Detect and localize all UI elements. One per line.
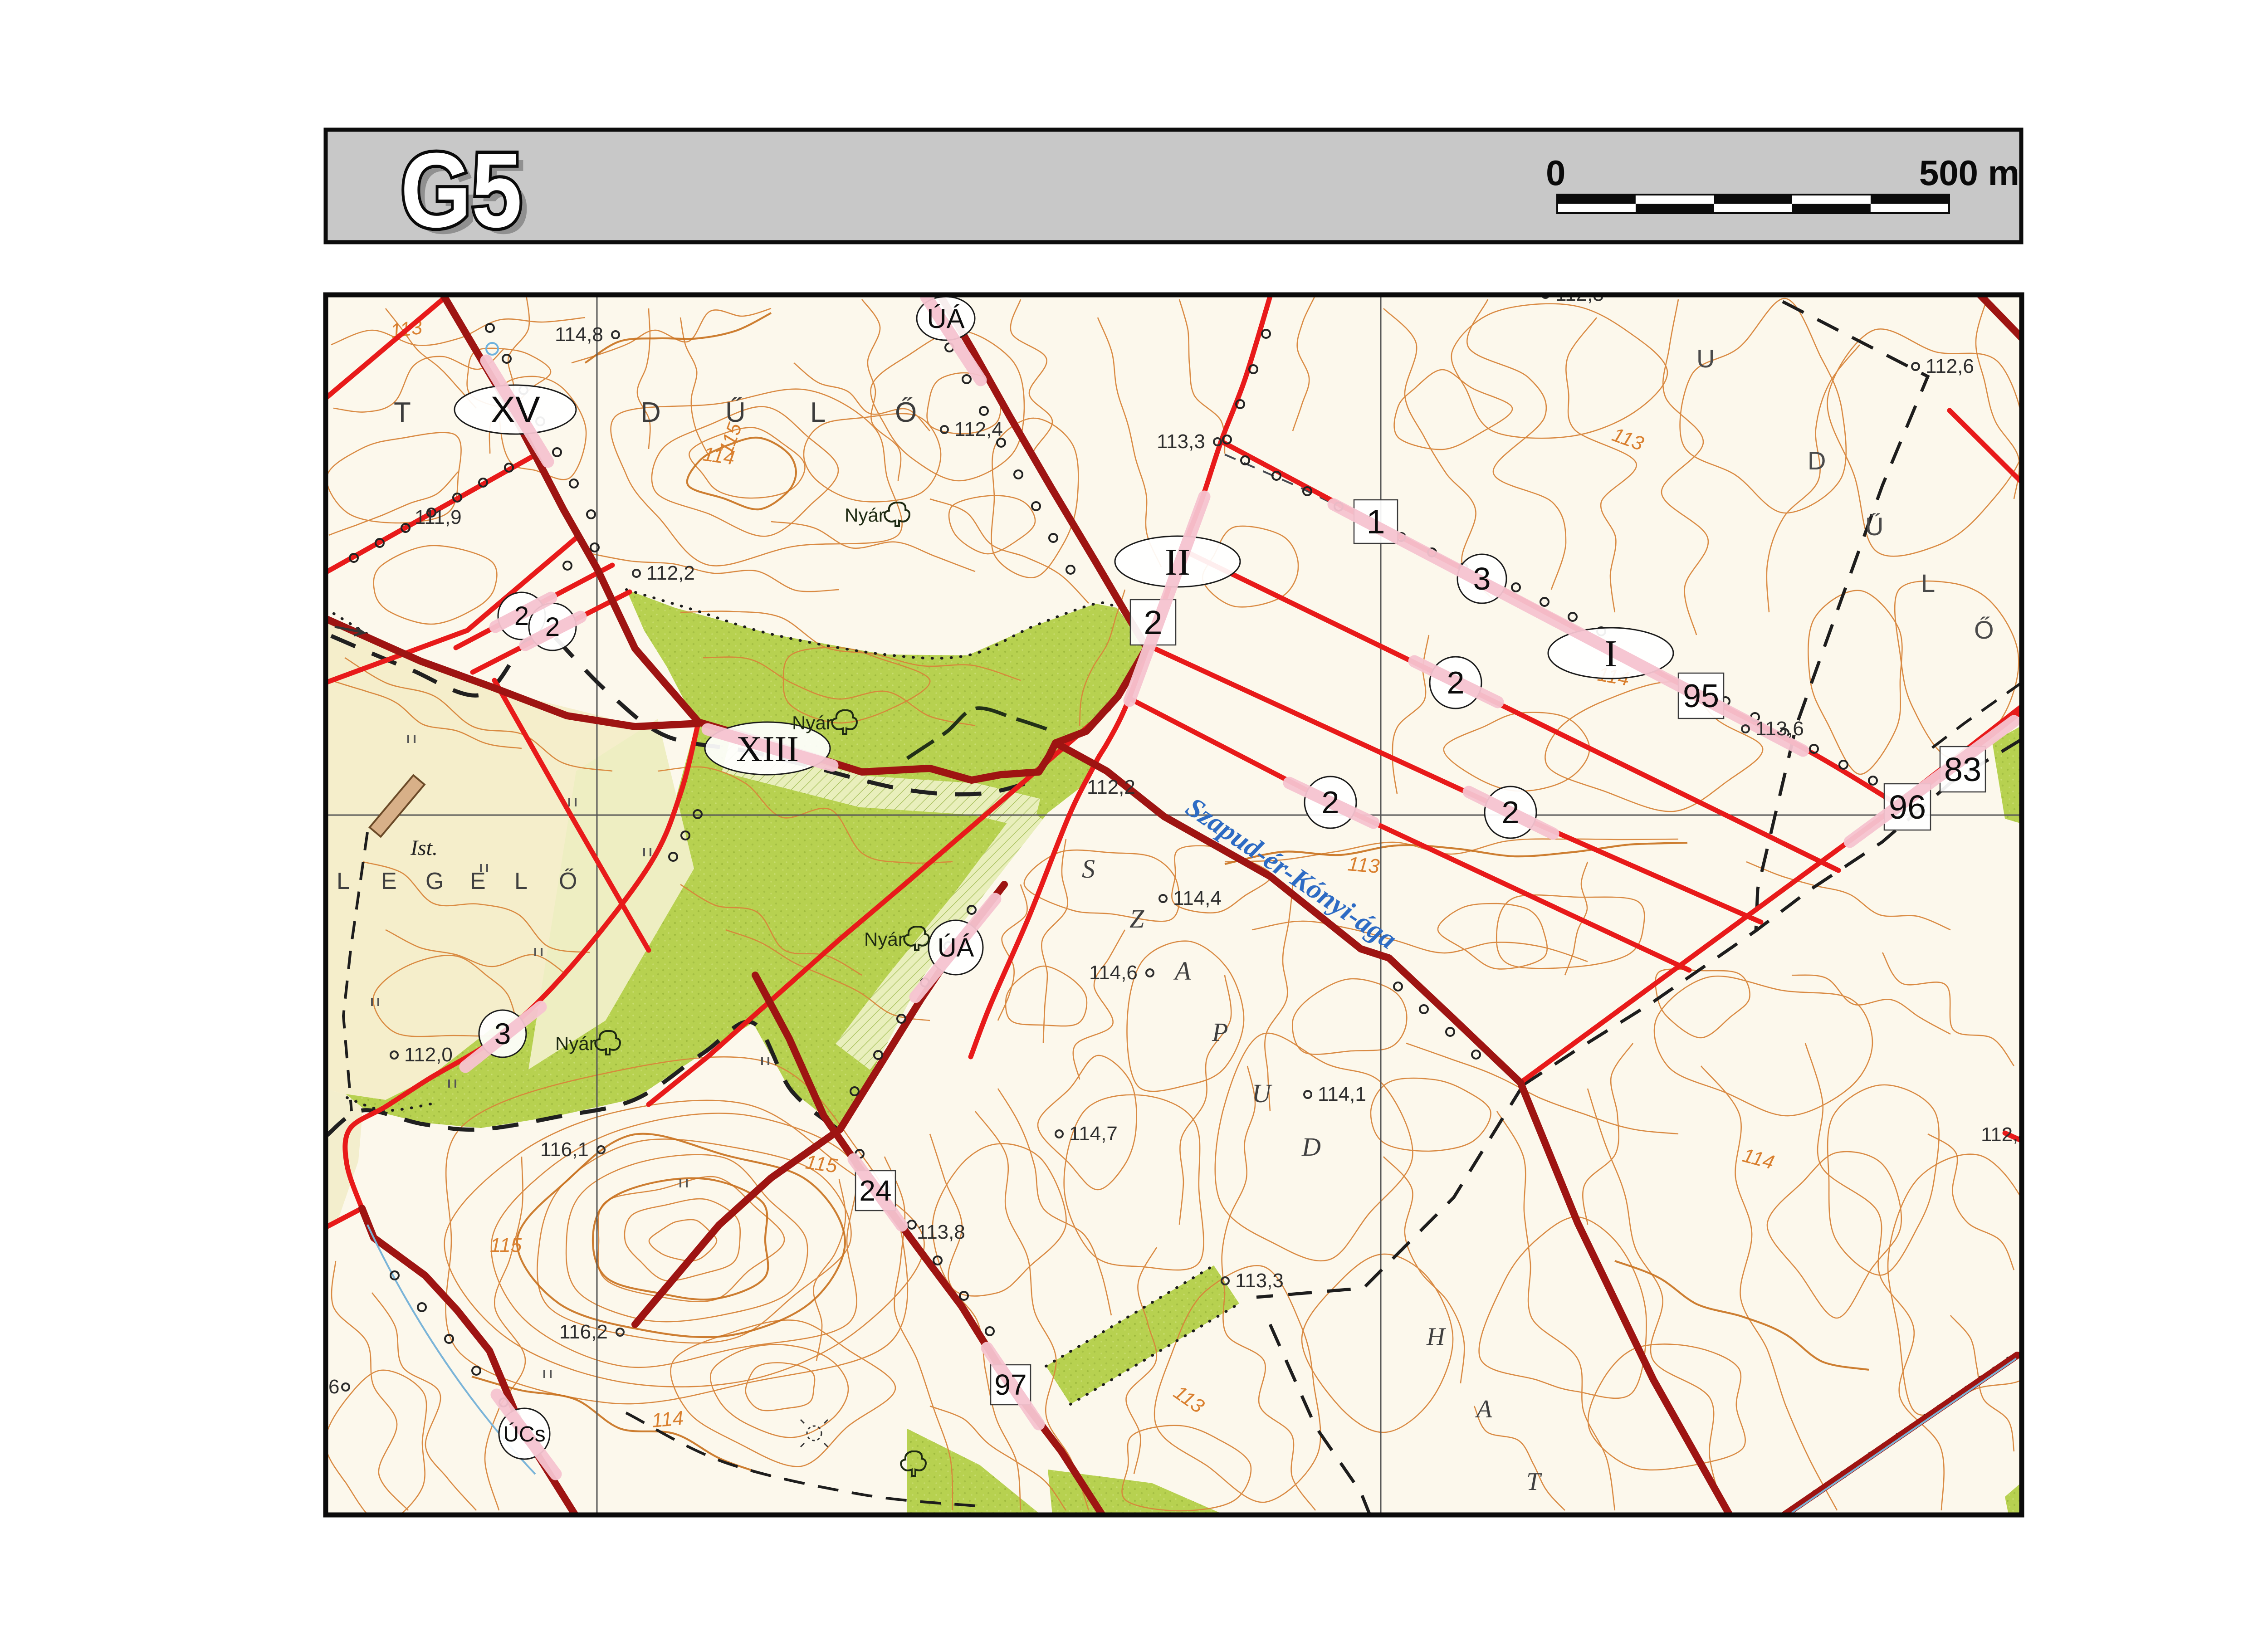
svg-text:2: 2 xyxy=(1322,785,1339,820)
svg-text:96: 96 xyxy=(1889,788,1926,826)
svg-text:95: 95 xyxy=(1683,678,1719,714)
svg-text:2: 2 xyxy=(545,612,560,642)
svg-text:0: 0 xyxy=(1546,153,1565,193)
svg-text:Ő: Ő xyxy=(559,868,577,894)
svg-text:L: L xyxy=(1921,569,1935,597)
svg-text:Nyár: Nyár xyxy=(555,1033,596,1054)
svg-text:3: 3 xyxy=(494,1017,511,1050)
svg-text:ÚÁ: ÚÁ xyxy=(938,933,974,962)
svg-text:113: 113 xyxy=(1347,853,1381,878)
svg-text:E: E xyxy=(470,868,486,894)
svg-text:115: 115 xyxy=(490,1234,522,1256)
svg-text:ÚÁ: ÚÁ xyxy=(927,303,964,334)
svg-text:Ű: Ű xyxy=(1865,512,1883,541)
svg-text:Ű: Ű xyxy=(725,397,746,428)
svg-text:H: H xyxy=(1426,1323,1446,1351)
svg-text:II: II xyxy=(1165,541,1190,583)
svg-text:114,8: 114,8 xyxy=(555,323,603,346)
svg-text:83: 83 xyxy=(1944,751,1981,788)
svg-text:Ist.: Ist. xyxy=(410,836,438,860)
svg-text:1: 1 xyxy=(1366,503,1385,541)
svg-text:XV: XV xyxy=(490,389,540,430)
svg-text:500 m: 500 m xyxy=(1919,153,2019,193)
svg-text:T: T xyxy=(394,397,411,428)
svg-text:113,6: 113,6 xyxy=(1755,718,1804,740)
svg-text:24: 24 xyxy=(859,1174,891,1207)
svg-text:U: U xyxy=(1696,344,1715,373)
svg-text:G: G xyxy=(425,868,444,894)
svg-text:A: A xyxy=(1173,956,1191,986)
svg-text:ÚCs: ÚCs xyxy=(503,1422,545,1446)
svg-text:113,3: 113,3 xyxy=(1157,430,1205,453)
svg-text:G5: G5 xyxy=(401,131,522,249)
svg-text:114: 114 xyxy=(651,1407,684,1432)
svg-text:L: L xyxy=(810,397,826,428)
svg-text:2: 2 xyxy=(1502,795,1520,830)
svg-text:D: D xyxy=(640,397,661,428)
svg-text:P: P xyxy=(1212,1017,1228,1047)
svg-text:112,0: 112,0 xyxy=(404,1044,453,1066)
svg-text:114,6: 114,6 xyxy=(1089,962,1138,984)
svg-text:Ő: Ő xyxy=(1974,615,1994,644)
svg-text:E: E xyxy=(381,868,397,894)
svg-text:112,6: 112,6 xyxy=(1926,355,1974,377)
svg-text:116,1: 116,1 xyxy=(540,1138,589,1161)
svg-text:97: 97 xyxy=(994,1368,1026,1401)
svg-text:D: D xyxy=(1808,446,1826,475)
svg-text:Nyár: Nyár xyxy=(864,928,904,950)
svg-text:2: 2 xyxy=(1447,665,1465,700)
svg-text:Ő: Ő xyxy=(895,397,917,428)
svg-text:D: D xyxy=(1301,1132,1321,1162)
svg-text:111,9: 111,9 xyxy=(415,506,462,528)
svg-text:XIII: XIII xyxy=(736,729,799,769)
svg-text:L: L xyxy=(514,868,528,894)
svg-text:6: 6 xyxy=(328,1376,339,1398)
svg-text:T: T xyxy=(1526,1468,1542,1496)
svg-text:I: I xyxy=(1604,633,1617,675)
svg-text:S: S xyxy=(1082,854,1095,884)
svg-text:112,4: 112,4 xyxy=(954,418,1003,440)
svg-text:U: U xyxy=(1252,1079,1273,1108)
svg-text:3: 3 xyxy=(1473,561,1491,596)
svg-text:2: 2 xyxy=(1144,604,1162,641)
svg-text:116,2: 116,2 xyxy=(559,1321,608,1343)
svg-text:114,7: 114,7 xyxy=(1069,1123,1118,1145)
svg-text:112,2: 112,2 xyxy=(1087,776,1135,798)
svg-text:Nyár: Nyár xyxy=(792,712,832,733)
svg-text:Nyár: Nyár xyxy=(845,504,885,526)
svg-text:113,3: 113,3 xyxy=(1235,1270,1284,1292)
svg-text:Z: Z xyxy=(1129,904,1144,933)
svg-text:112,2: 112,2 xyxy=(646,562,695,584)
svg-text:114,4: 114,4 xyxy=(1173,887,1222,909)
svg-text:2: 2 xyxy=(514,601,529,631)
svg-text:L: L xyxy=(337,868,350,894)
svg-text:114,1: 114,1 xyxy=(1318,1083,1366,1105)
svg-text:113,8: 113,8 xyxy=(917,1221,965,1243)
svg-text:A: A xyxy=(1475,1395,1492,1423)
